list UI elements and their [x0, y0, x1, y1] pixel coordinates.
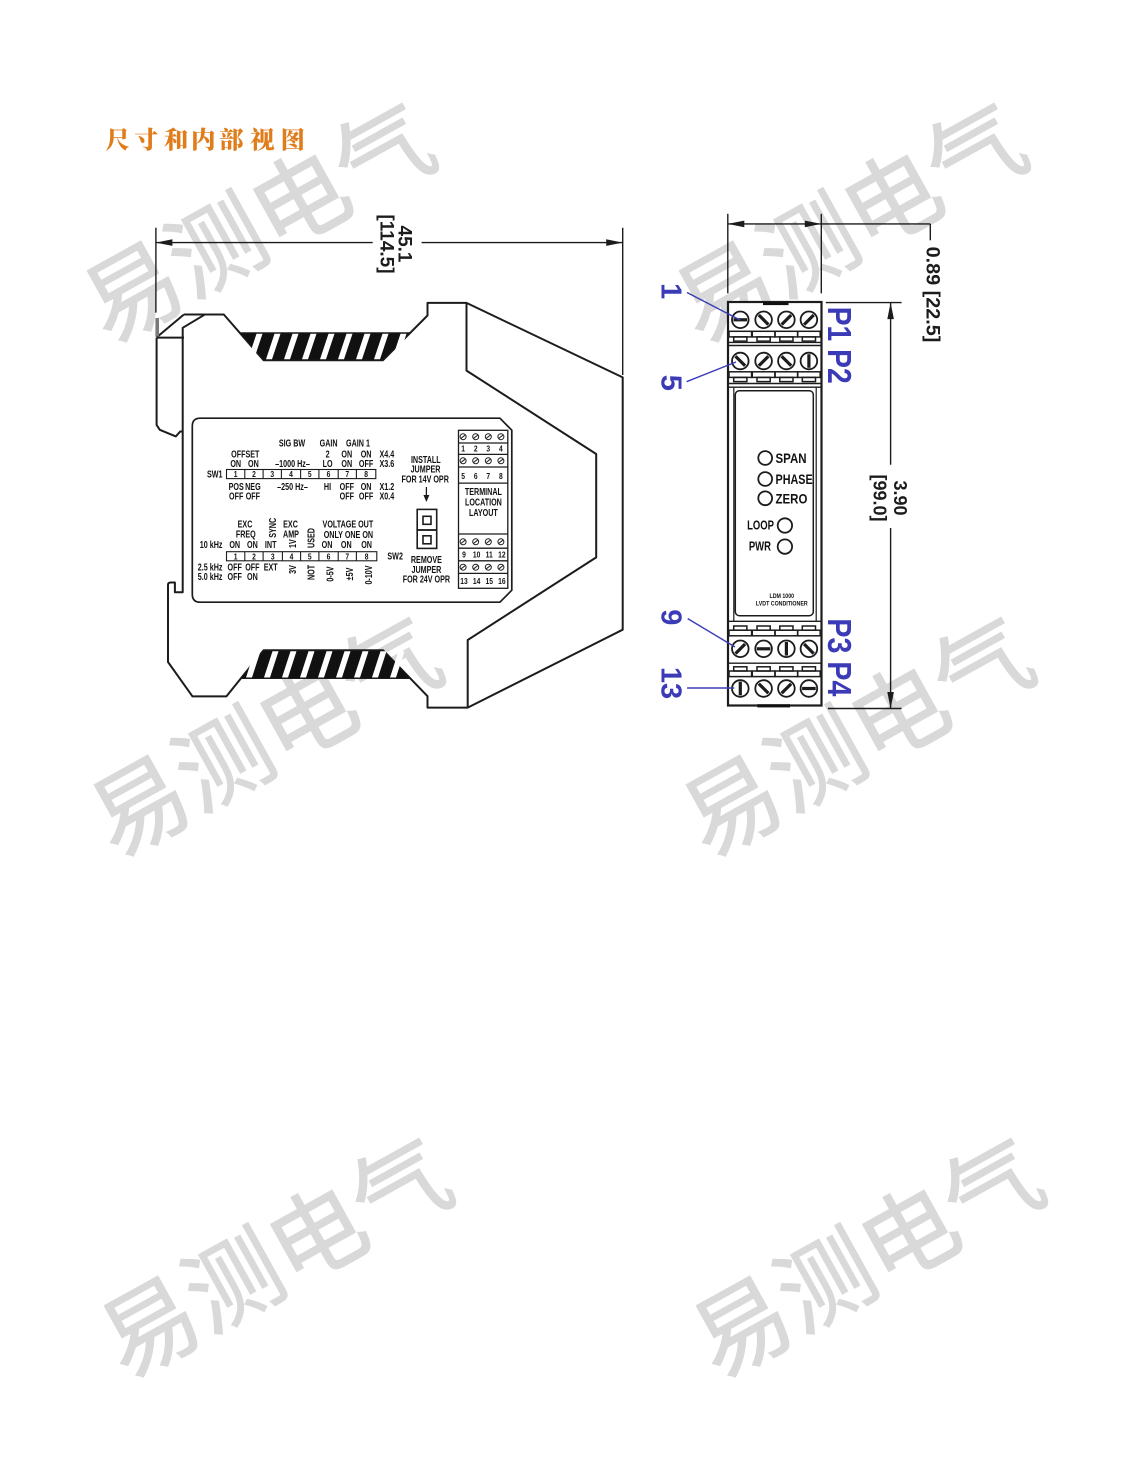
svg-text:OFF: OFF [229, 491, 243, 502]
svg-text:OFF: OFF [359, 458, 373, 469]
svg-text:8: 8 [364, 469, 368, 479]
svg-text:10: 10 [473, 550, 480, 560]
svg-text:5: 5 [655, 375, 687, 391]
svg-text:3.90: 3.90 [890, 480, 910, 515]
svg-text:ON: ON [248, 458, 259, 469]
svg-text:OFF: OFF [340, 491, 354, 502]
svg-text:SPAN: SPAN [776, 450, 807, 466]
svg-text:SIG BW: SIG BW [279, 438, 306, 449]
svg-text:[114.5]: [114.5] [376, 214, 397, 273]
svg-text:ON: ON [247, 539, 258, 550]
svg-text:0.89 [22.5]: 0.89 [22.5] [922, 247, 944, 343]
svg-text:7: 7 [486, 471, 490, 481]
svg-text:INT: INT [265, 539, 277, 550]
svg-text:LDM 1000: LDM 1000 [769, 593, 794, 600]
svg-text:GAIN: GAIN [320, 438, 338, 449]
svg-text:ON: ON [230, 458, 241, 469]
svg-text:10 kHz: 10 kHz [200, 539, 223, 550]
svg-text:2: 2 [252, 552, 256, 562]
svg-text:3: 3 [270, 469, 274, 479]
svg-text:ON: ON [247, 571, 258, 582]
svg-text:11: 11 [486, 550, 494, 560]
svg-text:FOR 14V OPR: FOR 14V OPR [402, 473, 449, 484]
svg-text:OFF: OFF [246, 491, 260, 502]
svg-text:13: 13 [655, 667, 687, 699]
svg-text:ON: ON [341, 458, 352, 469]
svg-text:3: 3 [486, 444, 490, 454]
svg-text:14: 14 [473, 576, 481, 586]
svg-text:X0.4: X0.4 [380, 491, 395, 502]
svg-text:NOT: NOT [306, 564, 317, 580]
svg-text:–1000 Hz–: –1000 Hz– [275, 458, 310, 469]
svg-text:OFF: OFF [359, 491, 373, 502]
svg-text:0-5V: 0-5V [324, 566, 335, 581]
svg-text:FOR 24V OPR: FOR 24V OPR [403, 574, 450, 585]
svg-text:3V: 3V [287, 565, 298, 574]
svg-text:1V: 1V [287, 539, 298, 548]
svg-text:7: 7 [345, 469, 349, 479]
svg-text:13: 13 [460, 576, 467, 586]
svg-text:ZERO: ZERO [776, 490, 808, 506]
svg-text:LVDT CONDITIONER: LVDT CONDITIONER [756, 601, 808, 608]
svg-text:GAIN 1: GAIN 1 [346, 438, 370, 449]
svg-text:X3.6: X3.6 [380, 458, 395, 469]
svg-text:[99.0]: [99.0] [869, 474, 889, 521]
svg-text:±5V: ±5V [344, 567, 355, 580]
svg-text:1: 1 [655, 283, 687, 299]
svg-text:6: 6 [474, 471, 478, 481]
svg-text:EXT: EXT [264, 561, 279, 572]
svg-text:6: 6 [327, 469, 331, 479]
svg-text:SW2: SW2 [387, 551, 403, 562]
svg-text:6: 6 [327, 552, 331, 562]
svg-text:9: 9 [655, 609, 687, 625]
svg-text:2: 2 [474, 444, 478, 454]
svg-text:LAYOUT: LAYOUT [469, 507, 498, 518]
svg-text:PWR: PWR [749, 540, 771, 554]
svg-text:SW1: SW1 [207, 468, 223, 479]
svg-text:12: 12 [498, 550, 505, 560]
svg-text:ON: ON [322, 539, 333, 550]
svg-text:8: 8 [499, 471, 503, 481]
svg-text:ON: ON [361, 539, 372, 550]
svg-text:8: 8 [365, 552, 369, 562]
svg-text:HI: HI [324, 481, 331, 492]
svg-text:15: 15 [485, 576, 493, 586]
svg-text:2: 2 [252, 469, 256, 479]
svg-text:OFF: OFF [228, 571, 242, 582]
svg-text:LOOP: LOOP [747, 519, 774, 533]
svg-text:0-10V: 0-10V [363, 565, 374, 584]
svg-text:P3 P4: P3 P4 [821, 618, 858, 697]
svg-text:USED: USED [306, 528, 317, 548]
svg-text:SYNC: SYNC [267, 518, 278, 538]
svg-text:PHASE: PHASE [776, 472, 813, 487]
svg-text:3: 3 [271, 552, 275, 562]
svg-text:7: 7 [345, 552, 349, 562]
svg-text:P1 P2: P1 P2 [821, 307, 858, 384]
svg-text:AMP: AMP [283, 528, 299, 539]
svg-text:–250 Hz–: –250 Hz– [277, 481, 308, 492]
svg-text:ON: ON [229, 539, 240, 550]
svg-text:9: 9 [462, 550, 466, 560]
svg-text:ON: ON [341, 539, 352, 550]
svg-text:16: 16 [498, 576, 505, 586]
svg-text:LO: LO [323, 458, 333, 469]
svg-text:5.0 kHz: 5.0 kHz [198, 571, 223, 582]
